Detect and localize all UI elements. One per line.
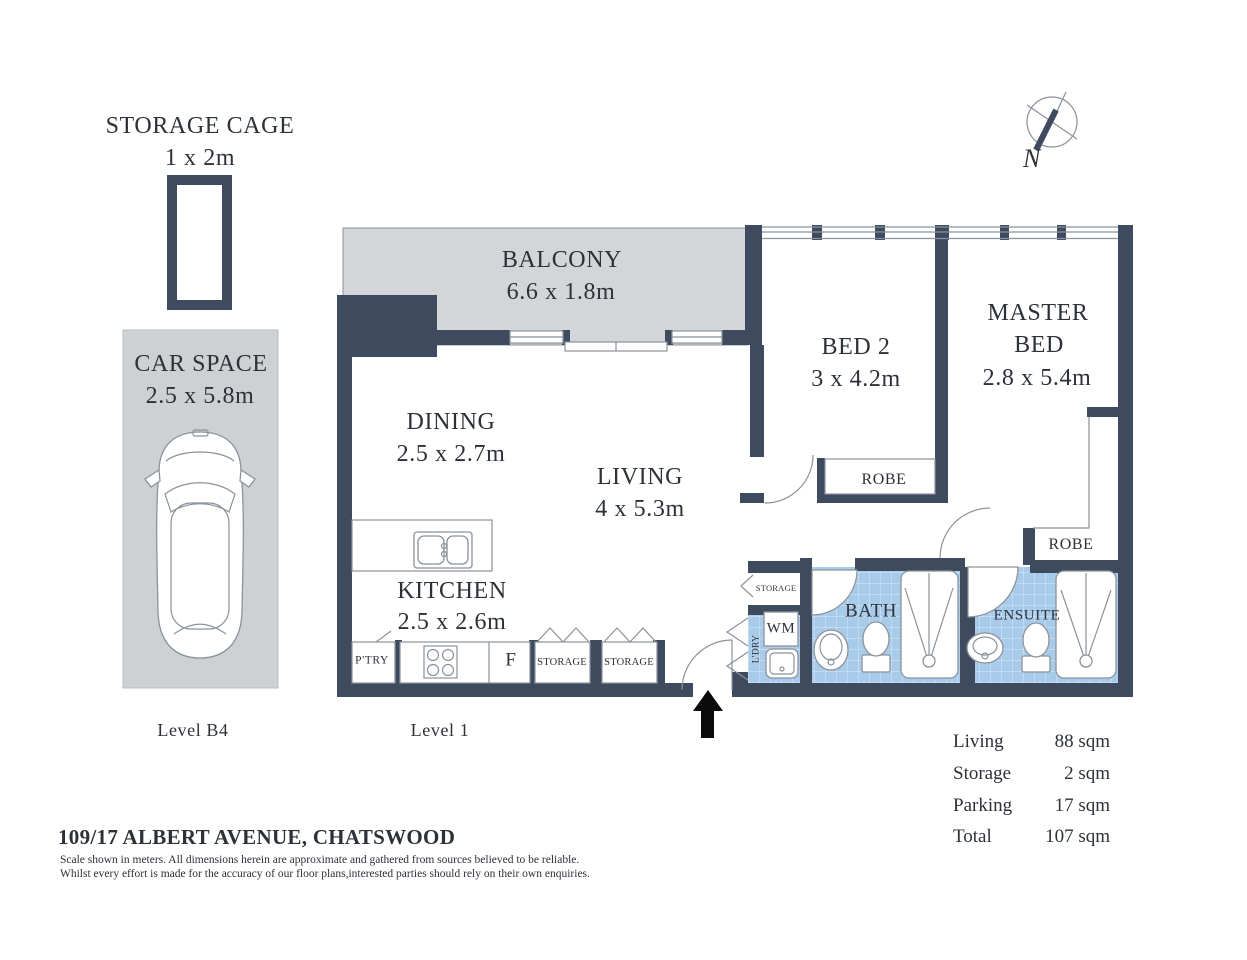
bifold-storage1-icon [537, 628, 589, 642]
room-label-living: LIVING [597, 465, 683, 489]
room-dims-living: 4 x 5.3m [595, 497, 684, 521]
basin-icon [814, 630, 848, 670]
robe-master-label: ROBE [1048, 537, 1093, 553]
address-title: 109/17 ALBERT AVENUE, CHATSWOOD [58, 824, 455, 850]
area-label: Parking [953, 795, 1012, 817]
room-dims-bed2: 3 x 4.2m [811, 367, 900, 391]
room-label-ensuite: ENSUITE [994, 609, 1061, 624]
room-label-master-line1: MASTER [988, 301, 1089, 325]
basin-icon [967, 633, 1003, 663]
room-label-master-line2: BED [1014, 333, 1064, 357]
storage-cage-icon [172, 180, 227, 305]
level-b4-label: Level B4 [157, 721, 228, 739]
area-row-total: Total 107 sqm [953, 826, 1110, 848]
room-dims-kitchen: 2.5 x 2.6m [398, 610, 507, 634]
bed2-door-icon [765, 455, 813, 503]
bifold-hall-storage-icon [741, 575, 753, 597]
toilet-icon [862, 622, 890, 672]
storage-hall-label: STORAGE [756, 584, 796, 593]
storage-cage-dims: 1 x 2m [165, 146, 235, 170]
compass-north-label: N [1023, 146, 1041, 172]
fridge-label: F [505, 651, 516, 670]
room-dims-dining: 2.5 x 2.7m [397, 442, 506, 466]
area-label: Living [953, 731, 1004, 753]
compass-icon [1027, 92, 1077, 152]
area-value: 88 sqm [1055, 731, 1110, 753]
area-row-parking: Parking 17 sqm [953, 795, 1110, 817]
car-space-dims: 2.5 x 5.8m [146, 384, 255, 408]
room-label-dining: DINING [407, 410, 496, 434]
area-value: 2 sqm [1064, 763, 1110, 785]
area-value: 107 sqm [1045, 826, 1110, 848]
room-dims-master: 2.8 x 5.4m [983, 366, 1092, 390]
master-door-icon [940, 508, 990, 558]
level-1-label: Level 1 [411, 721, 470, 739]
room-dims-balcony: 6.6 x 1.8m [507, 280, 616, 304]
storage-cage-title: STORAGE CAGE [106, 114, 295, 138]
room-label-bed2: BED 2 [822, 335, 891, 359]
washing-machine-label: WM [767, 622, 796, 637]
area-row-living: Living 88 sqm [953, 731, 1110, 753]
pantry-label: P'TRY [355, 655, 389, 667]
storage-kitchen2-label: STORAGE [604, 658, 654, 669]
bifold-laundry1-icon [727, 618, 748, 646]
room-label-balcony: BALCONY [502, 248, 622, 272]
disclaimer-line2: Whilst every effort is made for the accu… [60, 867, 590, 881]
room-label-kitchen: KITCHEN [397, 579, 507, 603]
car-space-title: CAR SPACE [134, 352, 267, 376]
area-row-storage: Storage 2 sqm [953, 763, 1110, 785]
disclaimer-line1: Scale shown in meters. All dimensions he… [60, 853, 579, 867]
bifold-storage2-icon [604, 628, 656, 642]
shower-icon [901, 571, 958, 678]
room-label-bath: BATH [845, 602, 897, 621]
shower-icon [1056, 571, 1116, 678]
area-label: Storage [953, 763, 1011, 785]
area-label: Total [953, 826, 992, 848]
storage-kitchen1-label: STORAGE [537, 658, 587, 669]
sliding-door-icon [565, 342, 667, 351]
toilet-icon [1022, 623, 1050, 672]
entry-arrow-icon [693, 690, 723, 738]
laundry-tub-icon [766, 649, 798, 678]
laundry-label: L'DRY [752, 635, 762, 664]
area-value: 17 sqm [1055, 795, 1110, 817]
floorplan-page: STORAGE CAGE 1 x 2m CAR SPACE 2.5 x 5.8m… [0, 0, 1247, 960]
sink-icon [414, 532, 472, 568]
entry-door-icon [682, 640, 732, 690]
robe-bed2-label: ROBE [861, 472, 906, 488]
car-icon [145, 430, 255, 658]
